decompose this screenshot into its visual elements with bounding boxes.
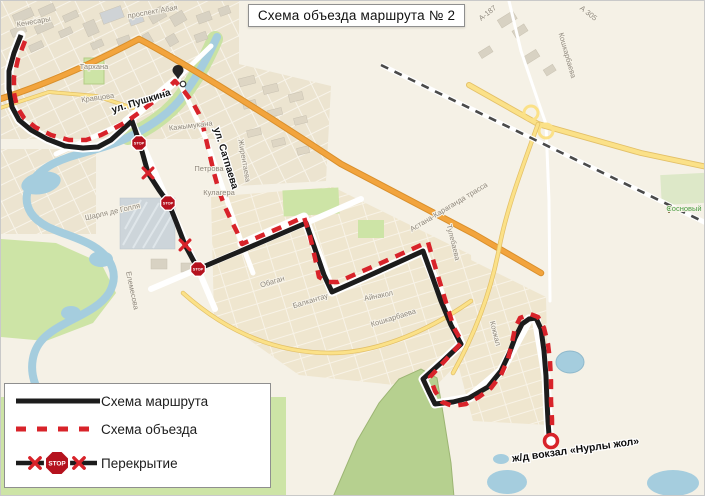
legend-row-closure: Перекрытие [5,442,270,484]
map-title: Схема объезда маршрута № 2 [248,4,465,27]
detour-map: STOP [0,0,705,496]
closure-sample-icon [13,445,101,481]
stop-sign-icon [191,262,206,277]
route-dashed-sample-icon [13,422,101,436]
legend-label-closure: Перекрытие [101,456,178,471]
legend-row-route: Схема маршрута [5,388,270,414]
stop-sign-icon [132,136,147,151]
route-solid-sample-icon [13,394,101,408]
legend-label-detour: Схема объезда [101,422,197,437]
legend-row-detour: Схема объезда [5,416,270,442]
route-endpoint [545,435,558,448]
legend-label-route: Схема маршрута [101,394,208,409]
legend: Схема маршрута Схема объезда Перекрытие [4,383,271,488]
map-label-poi: Сосновый [666,204,701,213]
map-label-minor: Тархана [80,62,109,71]
map-label-minor: Петрова [194,164,224,173]
stop-sign-icon [161,196,176,211]
